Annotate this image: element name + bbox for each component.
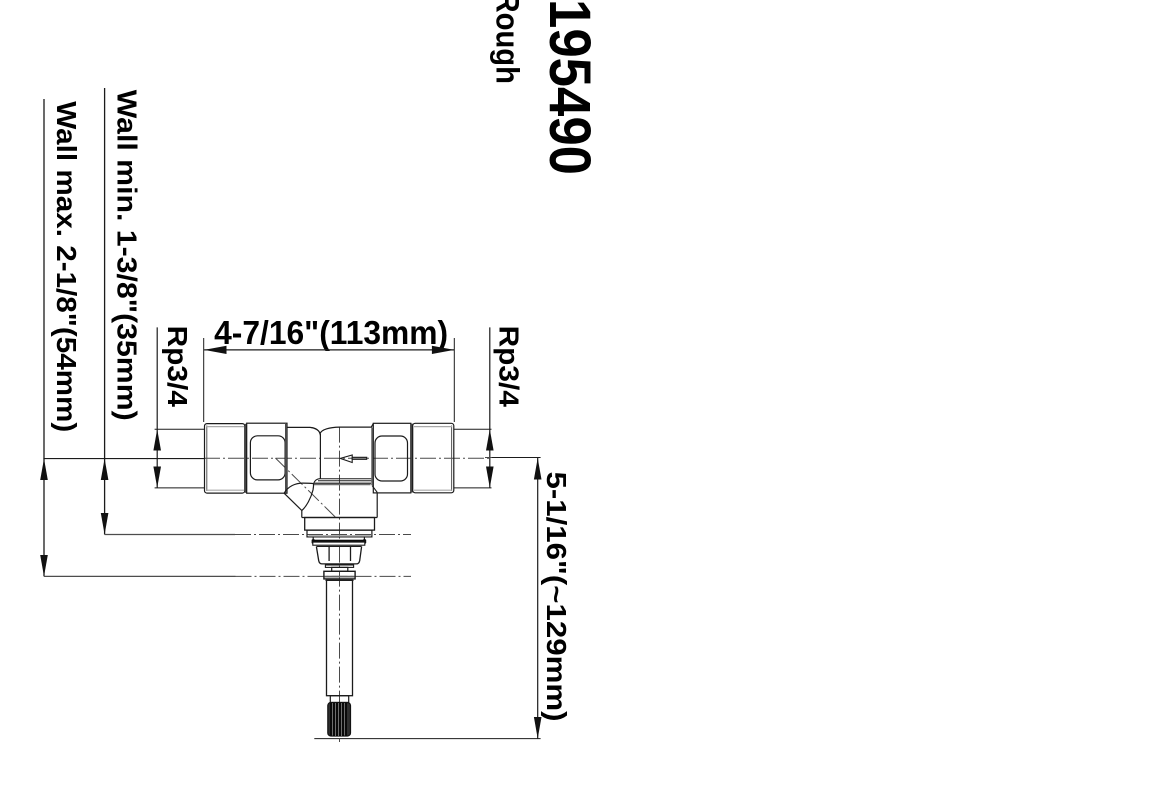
svg-text:Wall min. 1-3/8"(35mm): Wall min. 1-3/8"(35mm) [111,90,142,421]
svg-text:4-7/16"(113mm): 4-7/16"(113mm) [214,314,448,351]
svg-text:Rough: Rough [489,0,525,84]
svg-text:Rp3/4: Rp3/4 [494,326,525,408]
svg-text:195490: 195490 [537,0,602,175]
svg-text:5-1/16"(~129mm): 5-1/16"(~129mm) [541,472,572,722]
svg-text:Rp3/4: Rp3/4 [162,326,193,408]
svg-text:Wall max. 2-1/8"(54mm): Wall max. 2-1/8"(54mm) [51,101,82,432]
